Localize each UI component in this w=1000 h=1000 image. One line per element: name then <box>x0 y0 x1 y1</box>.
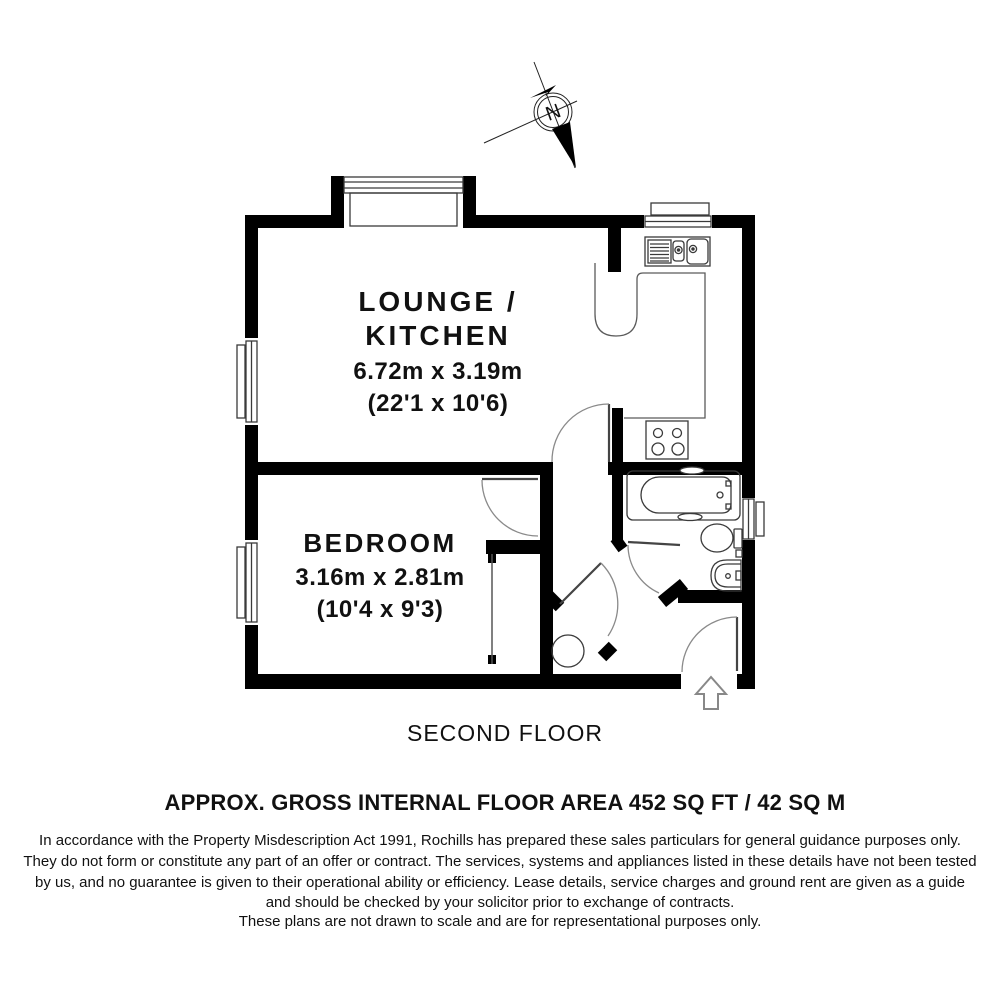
hob-burner <box>652 443 664 455</box>
wall-bathroom-bottom <box>678 590 742 603</box>
wash-basin <box>711 560 741 591</box>
bathroom-window-sill <box>756 502 764 536</box>
bedroom-door <box>482 479 538 536</box>
toilet-cistern <box>734 529 742 548</box>
wall-left-b <box>245 425 258 540</box>
disclaimer-line: They do not form or constitute any part … <box>23 853 976 870</box>
gross-area-label: APPROX. GROSS INTERNAL FLOOR AREA 452 SQ… <box>165 790 846 815</box>
wall-hall-left <box>540 462 553 674</box>
wall-kitchen-stub <box>608 228 621 272</box>
wall-closet-top <box>486 540 542 554</box>
floorplan-page: N <box>0 0 1000 1000</box>
disclaimer-line: by us, and no guarantee is given to thei… <box>35 874 965 891</box>
bedroom-label: BEDROOM <box>303 528 456 558</box>
bedroom-dimensions-metric: 3.16m x 2.81m <box>295 564 464 591</box>
kitchen-counter <box>595 263 705 418</box>
wall-top-middle <box>473 215 644 228</box>
bay-window-recess <box>350 193 457 226</box>
doors <box>482 404 737 672</box>
lounge-kitchen-label-line1: LOUNGE / <box>358 286 517 317</box>
lounge-window-sill <box>237 345 245 418</box>
bath-drain <box>717 492 723 498</box>
entrance-arrow-icon <box>696 677 726 709</box>
hob-burner <box>672 443 684 455</box>
kitchen-window-sill <box>651 203 709 215</box>
floor-label: SECOND FLOOR <box>407 720 603 746</box>
bedroom-window <box>237 543 257 622</box>
bay-window-glass <box>344 177 463 193</box>
lounge-kitchen-label-line2: KITCHEN <box>365 320 510 351</box>
disclaimer-line: and should be checked by your solicitor … <box>266 894 735 911</box>
wall-bay-right <box>463 176 476 228</box>
wall-top-right <box>712 215 755 228</box>
bay-window <box>344 177 463 226</box>
basin-inner <box>715 564 741 587</box>
kitchen-window <box>645 203 711 227</box>
kitchen-counter-outline <box>595 263 705 418</box>
wall-top-left <box>245 215 335 228</box>
compass-north-label: N <box>543 100 564 126</box>
wall-hall-right-cap <box>615 538 623 549</box>
wall-bay-left <box>331 176 344 228</box>
wall-left-a <box>245 228 258 338</box>
bath-handle-bottom <box>678 514 702 521</box>
floorplan-canvas: N <box>0 0 1000 1000</box>
bedroom-window-sill <box>237 547 245 618</box>
bedroom-dimensions-imperial: (10'4 x 9'3) <box>317 596 444 623</box>
kitchen-sink <box>645 237 710 266</box>
compass-south-tail-icon <box>552 122 576 168</box>
bath-handle-top <box>680 467 704 474</box>
lounge-kitchen-dimensions-imperial: (22'1 x 10'6) <box>368 390 509 417</box>
hall-cylinder-tank <box>552 635 584 667</box>
wall-hall-right <box>612 408 623 540</box>
wall-right-b <box>742 540 755 689</box>
lounge-kitchen-dimensions-metric: 6.72m x 3.19m <box>353 358 522 385</box>
wall-bottom <box>245 674 681 689</box>
toilet-bowl <box>701 524 733 552</box>
wall-partition-lounge-bedroom <box>258 462 540 475</box>
hall-door <box>560 563 618 636</box>
basin-drain <box>726 574 731 579</box>
hob-burner <box>673 429 682 438</box>
entrance-door <box>682 617 737 672</box>
hob <box>646 421 688 459</box>
disclaimer-line: These plans are not drawn to scale and a… <box>239 913 762 930</box>
hob-burner <box>654 429 663 438</box>
lounge-door <box>552 404 609 462</box>
wall-right-a <box>742 228 755 498</box>
lounge-window <box>237 341 257 422</box>
compass-rose: N <box>484 62 577 168</box>
bathroom-window <box>743 499 764 539</box>
basin-tap <box>736 571 741 580</box>
toilet-flush <box>736 550 742 557</box>
toilet <box>701 524 742 557</box>
bath <box>627 467 740 521</box>
disclaimer-line: In accordance with the Property Misdescr… <box>39 832 961 849</box>
wall-vestibule-stub-b <box>602 646 613 657</box>
